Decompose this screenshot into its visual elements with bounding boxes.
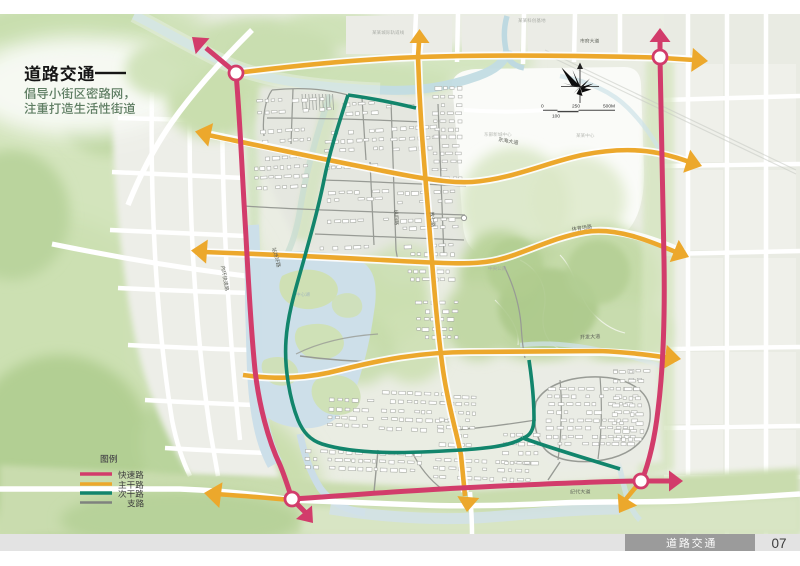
svg-text:07: 07 <box>771 536 786 551</box>
svg-text:100: 100 <box>552 114 560 120</box>
svg-text:500M: 500M <box>603 104 615 110</box>
svg-text:250: 250 <box>572 104 580 110</box>
svg-text:0: 0 <box>541 104 544 110</box>
